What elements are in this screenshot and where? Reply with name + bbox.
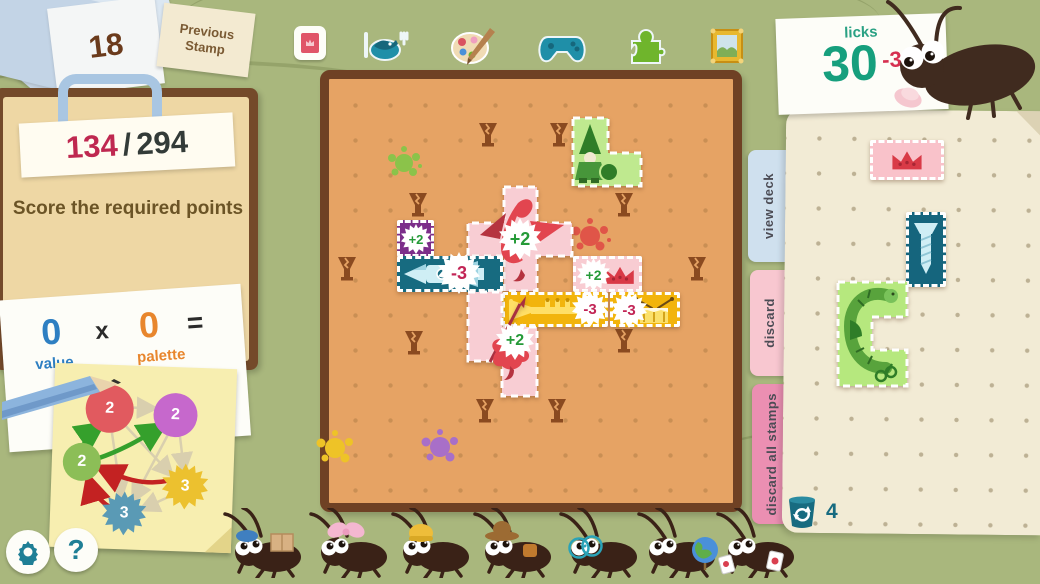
tab-food[interactable] [360, 30, 410, 64]
broken-glass-icon [336, 256, 358, 284]
tab-games[interactable] [538, 33, 586, 65]
score-total: 294 [135, 124, 189, 163]
formula-times: x [94, 317, 109, 346]
blue-cap-icon [236, 530, 258, 542]
formula-palette-label: palette [121, 345, 202, 368]
help-button[interactable]: ? [54, 528, 98, 572]
gear-icon [15, 539, 41, 565]
previous-stamp-count: 18 [87, 26, 126, 66]
cockroach-bow [303, 508, 393, 578]
broken-glass-icon [686, 256, 708, 284]
broken-glass-icon [407, 192, 429, 220]
score-separator: / [122, 127, 132, 163]
redraw-count: 4 [826, 500, 838, 524]
objective-text: Score the required points [10, 196, 246, 222]
cockroach-cards [710, 508, 800, 578]
discard-tab[interactable]: discard [750, 270, 788, 376]
screw-icon [912, 220, 940, 280]
broken-glass-icon [474, 398, 496, 426]
game-screen: 18 Previous Stamp 134 / 294 Score the re… [0, 0, 1040, 584]
paint-splat-red [568, 216, 612, 256]
hand-stamp-screw[interactable] [906, 212, 946, 287]
hand-stamp-worm[interactable] [836, 280, 909, 388]
previous-stamp-label: Previous Stamp [156, 3, 255, 78]
score-current: 134 [65, 128, 119, 167]
broken-glass-icon [403, 330, 425, 358]
stamp-wizard[interactable] [571, 116, 643, 188]
tab-toys[interactable] [628, 29, 666, 65]
tab-art[interactable] [450, 28, 496, 66]
view-deck-tab[interactable]: view deck [748, 150, 788, 262]
hand-stamp-crown[interactable] [870, 140, 944, 180]
saddle-bag-icon [523, 544, 537, 557]
broken-glass-icon [548, 122, 570, 150]
cockroach-globe [631, 508, 721, 578]
paint-splat-green [384, 144, 424, 182]
tab-stamp-album[interactable] [294, 26, 326, 60]
cockroach-beanie [385, 508, 475, 578]
broken-glass-icon [477, 122, 499, 150]
licker-cockroach [852, 0, 1040, 125]
formula-value-number: 0 [40, 310, 63, 353]
broken-glass-icon [546, 398, 568, 426]
stamp-icon [300, 32, 320, 54]
paint-splat-purple [418, 426, 462, 468]
pencil-icon [2, 358, 132, 420]
broken-glass-icon [613, 192, 635, 220]
help-question-mark: ? [67, 534, 84, 566]
tab-pictures[interactable] [710, 27, 744, 65]
formula-palette-number: 0 [138, 304, 161, 347]
settings-button[interactable] [6, 530, 50, 574]
cockroach-package [217, 508, 307, 578]
cockroach-glasses [553, 508, 643, 578]
formula-equals: = [186, 306, 205, 339]
broken-glass-icon [613, 328, 635, 356]
crown-icon [889, 147, 925, 173]
score-progress: 134 / 294 [19, 112, 236, 177]
beanie-icon [409, 524, 433, 542]
paint-splat-yellow [313, 428, 357, 468]
cockroach-cowboy [467, 508, 557, 578]
